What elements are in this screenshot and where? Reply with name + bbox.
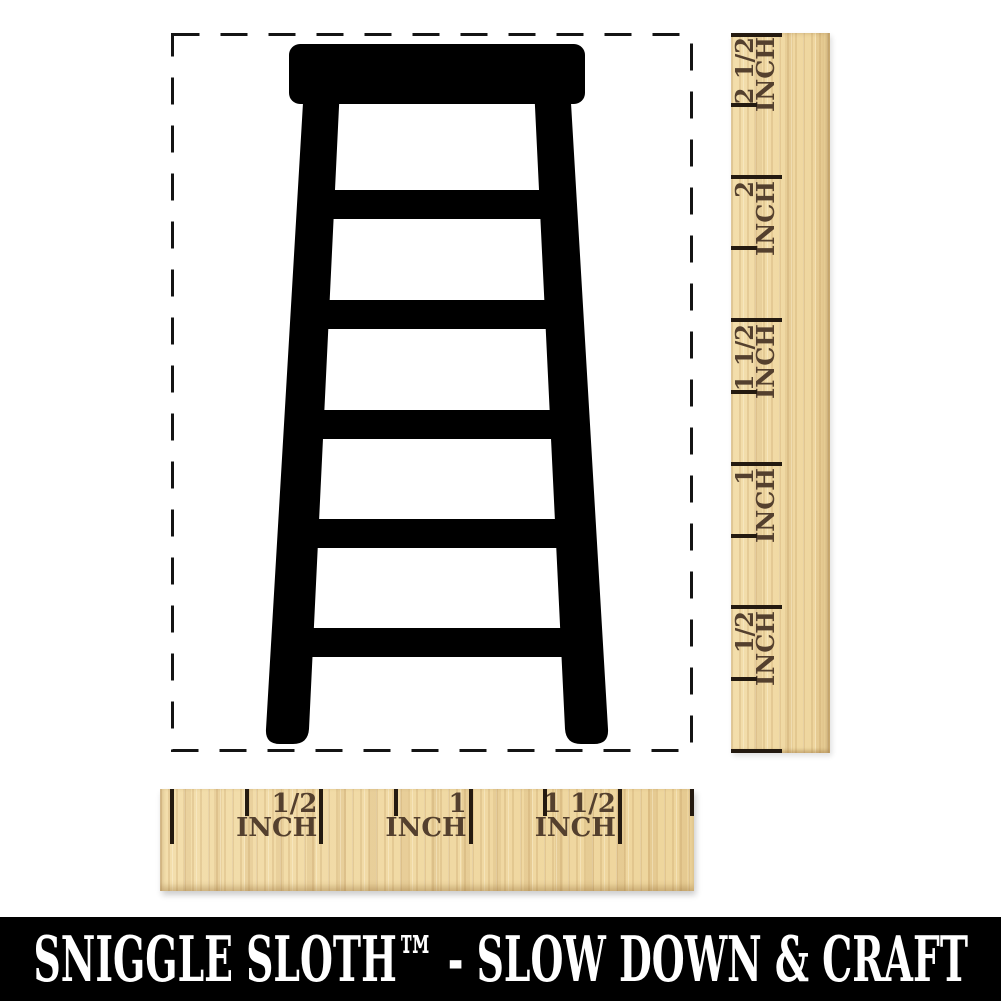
v-ruler-major-tick: [731, 175, 782, 179]
v-ruler-minor-tick: [731, 103, 757, 107]
v-ruler-major-tick: [731, 462, 782, 466]
product-image: SNIGGLE SLOTH™ - SLOW DOWN & CRAFT 2 1/2…: [0, 0, 1001, 1001]
h-ruler-minor-tick: [690, 789, 694, 816]
v-ruler-major-tick: [731, 605, 782, 609]
brand-tagline: SNIGGLE SLOTH™ - SLOW DOWN & CRAFT: [33, 917, 967, 1001]
h-ruler-minor-tick: [394, 789, 398, 816]
h-ruler-minor-tick: [543, 789, 547, 816]
ladder-rung-3: [307, 410, 567, 439]
h-ruler-major-tick: [618, 789, 622, 844]
ladder-rung-5: [297, 628, 577, 657]
v-ruler-major-tick: [731, 318, 782, 322]
v-ruler-minor-tick: [731, 390, 757, 394]
step-stool-ladder-icon: [171, 33, 693, 752]
horizontal-inch-ruler: [160, 789, 694, 891]
h-ruler-major-tick: [319, 789, 323, 844]
h-ruler-zero-tick: [170, 789, 174, 844]
ladder-rung-1: [317, 190, 557, 219]
v-ruler-minor-tick: [731, 534, 757, 538]
v-ruler-minor-tick: [731, 246, 757, 250]
brand-footer-band: SNIGGLE SLOTH™ - SLOW DOWN & CRAFT: [0, 917, 1001, 1001]
ladder-rung-4: [302, 519, 572, 548]
h-ruler-minor-tick: [245, 789, 249, 816]
v-ruler-zero-tick: [731, 749, 782, 753]
v-ruler-minor-tick: [731, 677, 757, 681]
ladder-top-cap: [289, 44, 585, 104]
v-ruler-major-tick: [731, 33, 782, 37]
h-ruler-major-tick: [469, 789, 473, 844]
ladder-rung-2: [312, 300, 562, 329]
